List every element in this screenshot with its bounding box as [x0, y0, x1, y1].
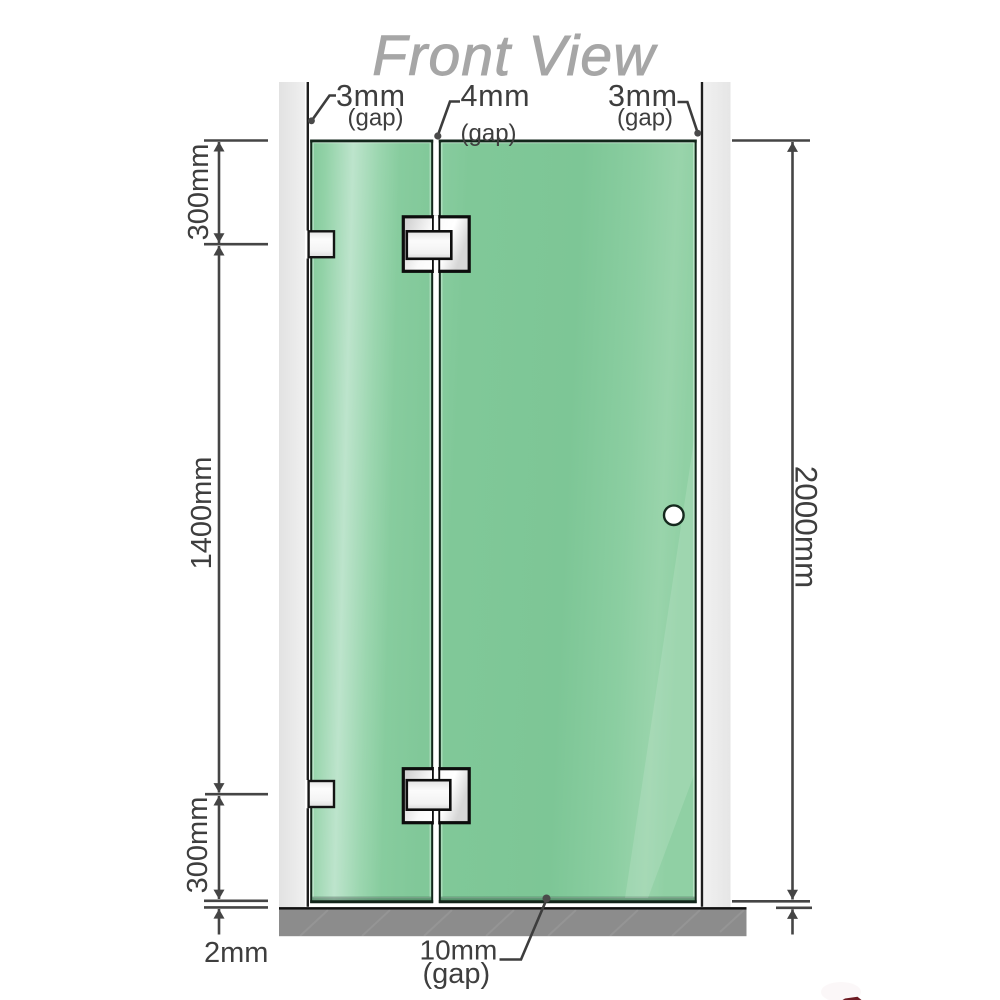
- svg-text:(gap): (gap): [461, 120, 517, 147]
- svg-text:300mm: 300mm: [183, 144, 215, 241]
- svg-text:2000mm: 2000mm: [789, 466, 825, 589]
- svg-text:4mm: 4mm: [461, 79, 531, 113]
- svg-text:2mm: 2mm: [204, 937, 268, 969]
- svg-text:(gap): (gap): [348, 105, 404, 132]
- svg-text:(gap): (gap): [617, 105, 673, 132]
- svg-text:(gap): (gap): [423, 958, 491, 990]
- svg-text:1400mm: 1400mm: [186, 457, 218, 570]
- svg-text:300mm: 300mm: [182, 797, 214, 894]
